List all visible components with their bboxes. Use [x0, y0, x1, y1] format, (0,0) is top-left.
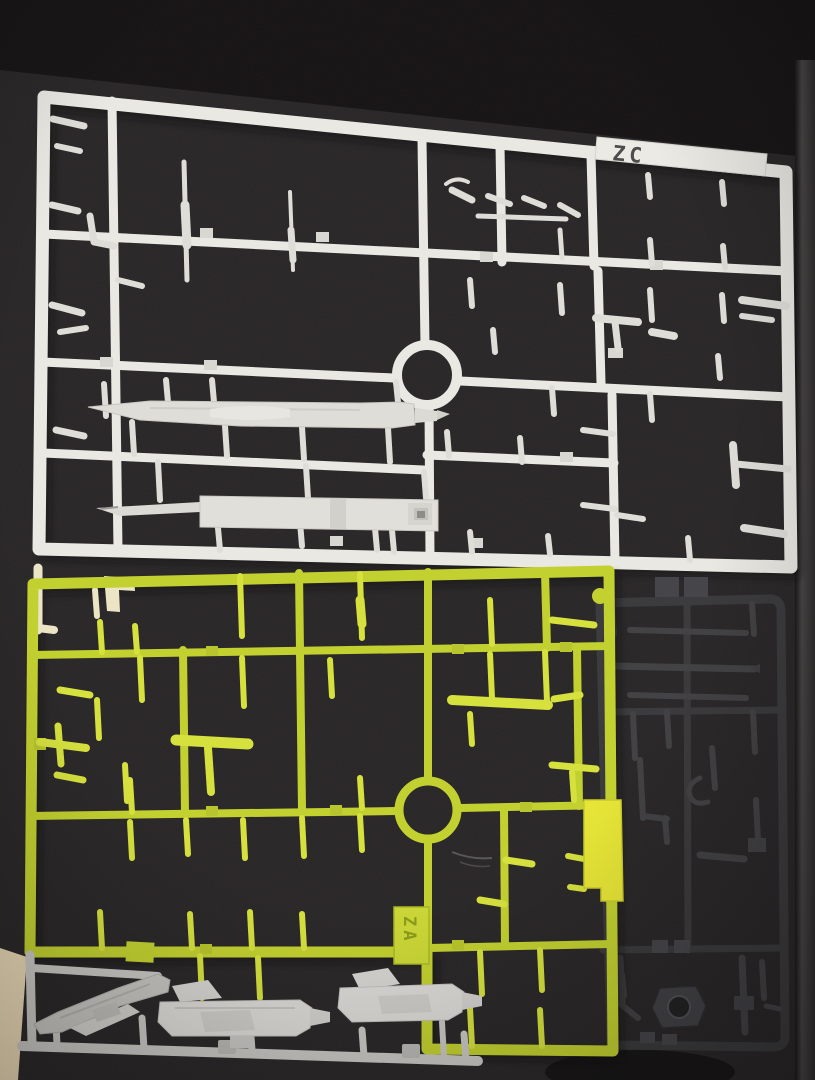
vignette [0, 0, 815, 1080]
photo-canvas: ZC [0, 0, 815, 1080]
photo-of-model-kit-sprues: ZC [0, 0, 815, 1080]
